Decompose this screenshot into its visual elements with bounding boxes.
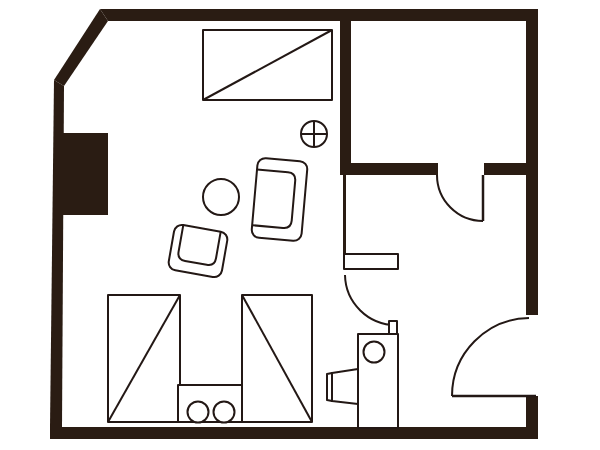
washbasin-unit-shape: [364, 342, 385, 363]
wardrobe-right: [242, 295, 312, 422]
armchair-shape: [167, 224, 228, 279]
closet-bottom-wall-left-shape: [340, 163, 438, 175]
top-left-chamfer-wall-shape: [54, 9, 108, 86]
armchair: [167, 224, 228, 279]
left-pillar: [54, 133, 108, 215]
top-wall-shape: [100, 9, 538, 21]
bathroom-door: [344, 254, 398, 334]
closet-bottom-wall-right-shape: [484, 163, 526, 175]
side-sink-shape: [327, 373, 332, 401]
left-wall: [50, 80, 64, 427]
entrance-door: [452, 318, 536, 396]
hall-partition-wall-shape: [343, 175, 346, 255]
right-wall-upper-shape: [526, 9, 538, 315]
closet-door-shape: [437, 175, 483, 221]
floor-plan-image: [0, 0, 600, 450]
top-wall: [100, 9, 538, 21]
counter-with-burners-shape: [214, 402, 235, 423]
left-pillar-shape: [54, 133, 108, 215]
hall-partition-wall: [343, 175, 346, 255]
ceiling-light-symbol: [301, 121, 327, 147]
closet-left-wall-shape: [340, 21, 351, 175]
closet-bottom-wall-right: [484, 163, 526, 175]
entrance-door-shape: [452, 318, 529, 396]
side-sink: [327, 369, 358, 404]
desk-with-diagonal: [203, 30, 332, 100]
wardrobe-left: [108, 295, 180, 422]
washbasin-unit: [358, 334, 398, 428]
top-left-chamfer-wall: [54, 9, 108, 86]
right-wall-lower-shape: [526, 396, 538, 439]
left-wall-shape: [50, 80, 64, 427]
closet-door: [437, 175, 483, 221]
side-sink-shape: [332, 369, 358, 404]
round-table: [203, 179, 239, 215]
bathroom-door-shape: [345, 275, 396, 325]
round-table-shape: [203, 179, 239, 215]
closet-left-wall: [340, 21, 351, 175]
counter-with-burners-shape: [188, 402, 209, 423]
right-wall-lower: [526, 396, 538, 439]
closet-bottom-wall-left: [340, 163, 438, 175]
sofa: [251, 157, 308, 241]
right-wall-upper: [526, 9, 538, 315]
bathroom-door-shape: [344, 254, 398, 269]
bottom-wall-shape: [50, 427, 538, 439]
bathroom-door-shape: [389, 321, 397, 334]
bottom-wall: [50, 427, 538, 439]
counter-with-burners: [178, 385, 242, 423]
floor-plan-svg: [0, 0, 600, 450]
